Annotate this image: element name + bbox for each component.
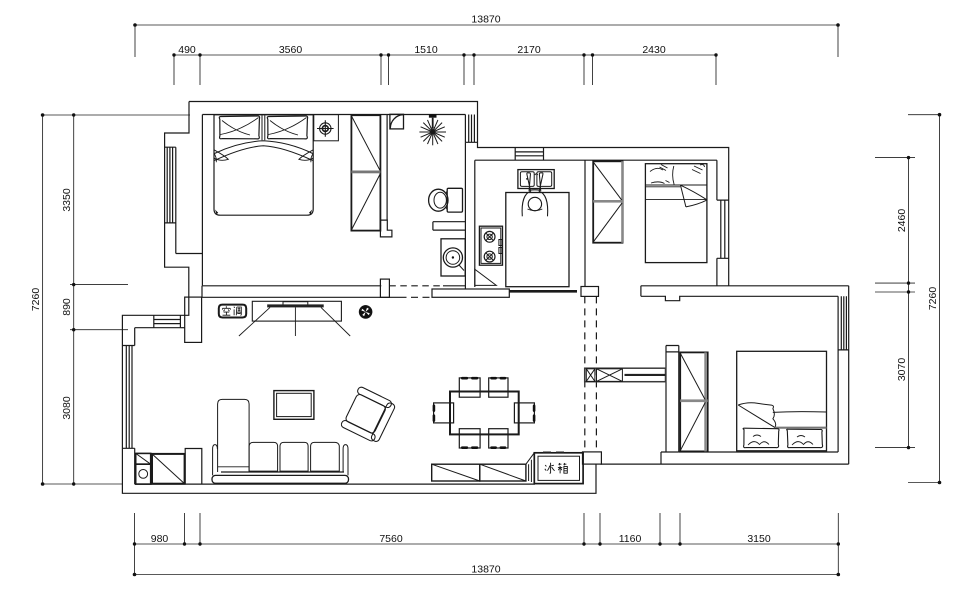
svg-text:3070: 3070 [896,358,908,382]
svg-text:13870: 13870 [471,14,500,26]
svg-text:490: 490 [178,44,196,56]
svg-text:2430: 2430 [642,44,666,56]
svg-text:3150: 3150 [747,533,771,545]
svg-text:2170: 2170 [517,44,541,56]
svg-text:1160: 1160 [619,533,642,545]
svg-text:980: 980 [151,533,169,545]
svg-text:7260: 7260 [30,288,42,312]
svg-text:2460: 2460 [896,209,908,233]
svg-text:890: 890 [61,298,73,316]
svg-text:13870: 13870 [471,563,500,575]
svg-text:3080: 3080 [61,396,73,420]
svg-text:1510: 1510 [414,44,438,56]
svg-text:3350: 3350 [61,188,73,212]
svg-text:7560: 7560 [379,533,403,545]
svg-text:3560: 3560 [279,44,303,56]
svg-text:7260: 7260 [927,287,939,311]
